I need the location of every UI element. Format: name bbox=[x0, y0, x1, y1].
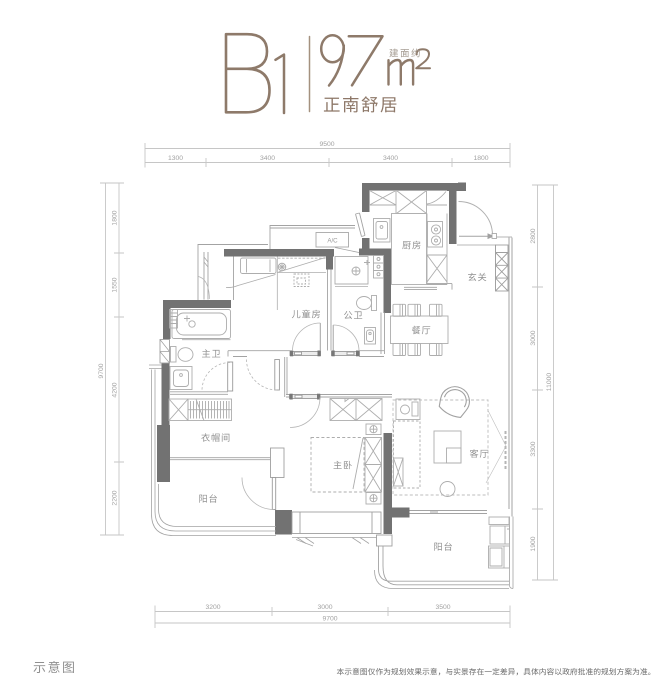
svg-text:3300: 3300 bbox=[530, 441, 537, 456]
svg-text:1300: 1300 bbox=[168, 155, 183, 162]
svg-text:3500: 3500 bbox=[435, 604, 450, 611]
svg-text:A/C: A/C bbox=[327, 237, 338, 244]
svg-text:3000: 3000 bbox=[530, 330, 537, 345]
svg-text:2200: 2200 bbox=[112, 490, 119, 505]
svg-text:9700: 9700 bbox=[98, 363, 105, 378]
svg-text:1800: 1800 bbox=[112, 210, 119, 225]
svg-text:11000: 11000 bbox=[546, 373, 553, 392]
svg-text:4200: 4200 bbox=[112, 382, 119, 397]
svg-text:3000: 3000 bbox=[317, 604, 332, 611]
svg-text:1550: 1550 bbox=[112, 277, 119, 292]
svg-text:3400: 3400 bbox=[260, 155, 275, 162]
svg-text:2800: 2800 bbox=[530, 228, 537, 243]
svg-text:3400: 3400 bbox=[383, 155, 398, 162]
svg-text:9500: 9500 bbox=[319, 141, 334, 148]
svg-text:1800: 1800 bbox=[473, 155, 488, 162]
svg-text:9700: 9700 bbox=[322, 616, 337, 623]
svg-text:1900: 1900 bbox=[530, 536, 537, 551]
svg-text:3200: 3200 bbox=[205, 604, 220, 611]
